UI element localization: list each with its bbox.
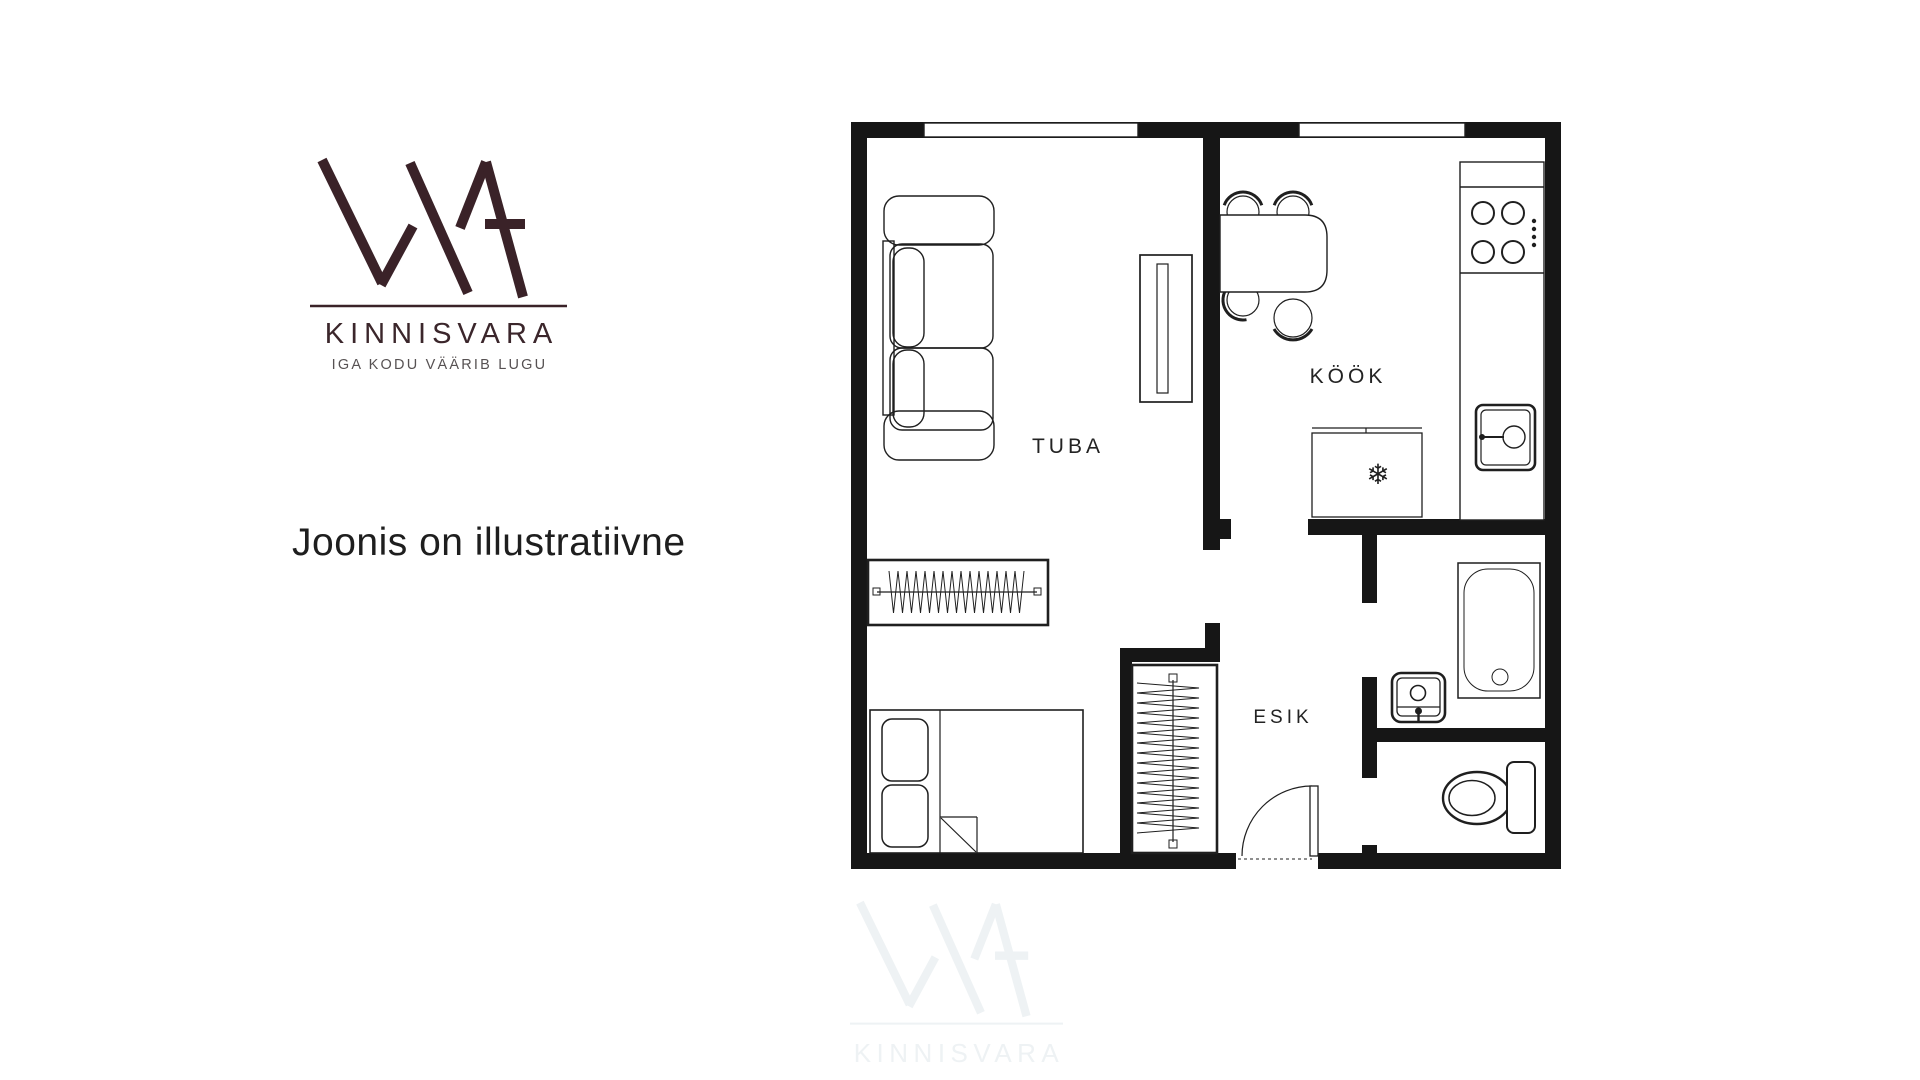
wa-logo-icon: [310, 140, 567, 310]
agency-logo: KINNISVARA IGA KODU VÄÄRIB LUGU: [310, 140, 567, 373]
sofa-back-cushion: [893, 350, 924, 427]
wa-logo-watermark-icon: [850, 886, 1063, 1027]
wall-segment: [1120, 648, 1220, 662]
kitchen-counter: [1460, 162, 1544, 520]
disclaimer-text: Joonis on illustratiivne: [292, 521, 686, 565]
wall-segment: [1362, 677, 1377, 778]
page-background: KINNISVARA IGA KODU VÄÄRIB LUGU Joonis o…: [0, 0, 1920, 1080]
wall-segment: [1120, 648, 1132, 853]
window-icon: [924, 123, 1138, 137]
wall-segment: [1362, 845, 1377, 857]
wall-segment: [1318, 853, 1561, 869]
washbasin-icon: [1392, 673, 1445, 722]
entry-door-icon: [1238, 786, 1318, 859]
dining-table-icon: [1220, 215, 1327, 292]
dining-set: [1220, 192, 1327, 340]
wall-segment: [851, 853, 1236, 869]
wall-segment: [1203, 138, 1220, 550]
sofa-armrest: [884, 411, 994, 460]
sofa-cushion: [890, 348, 993, 430]
logo-tagline: IGA KODU VÄÄRIB LUGU: [310, 357, 569, 373]
sofa-armrest: [884, 196, 994, 245]
watermark-wordmark: KINNISVARA: [850, 1038, 1068, 1069]
closet-icon: [868, 560, 1048, 625]
chair-icon: [1274, 299, 1312, 340]
fridge-icon: ❄: [1312, 428, 1422, 517]
watermark-logo: KINNISVARA: [850, 886, 1063, 1069]
logo-wordmark: KINNISVARA: [310, 318, 573, 351]
toilet-icon: [1443, 762, 1535, 833]
sofa-icon: [883, 196, 994, 460]
window-icon: [1299, 123, 1465, 137]
fridge-snowflake-icon: ❄: [1366, 458, 1389, 491]
wardrobe-icon: [1132, 665, 1217, 853]
wall-segment: [1308, 519, 1545, 535]
room-label-tuba: TUBA: [1032, 435, 1104, 458]
room-label-esik: ESIK: [1253, 707, 1312, 728]
tv-bench-icon: [1140, 255, 1192, 402]
floor-plan: ❄ TUBA KÖÖK: [851, 122, 1561, 869]
wall-segment: [851, 122, 867, 869]
wall-segment: [1220, 519, 1231, 539]
wall-segment: [1377, 728, 1545, 742]
sofa-cushion: [890, 244, 993, 348]
room-label-kook: KÖÖK: [1310, 365, 1387, 388]
wall-segment: [1205, 623, 1220, 648]
wall-segment: [1362, 535, 1377, 603]
bed-icon: [870, 710, 1083, 853]
sofa-back-cushion: [893, 248, 924, 347]
bathtub-icon: [1458, 563, 1540, 698]
wall-segment: [1545, 122, 1561, 869]
